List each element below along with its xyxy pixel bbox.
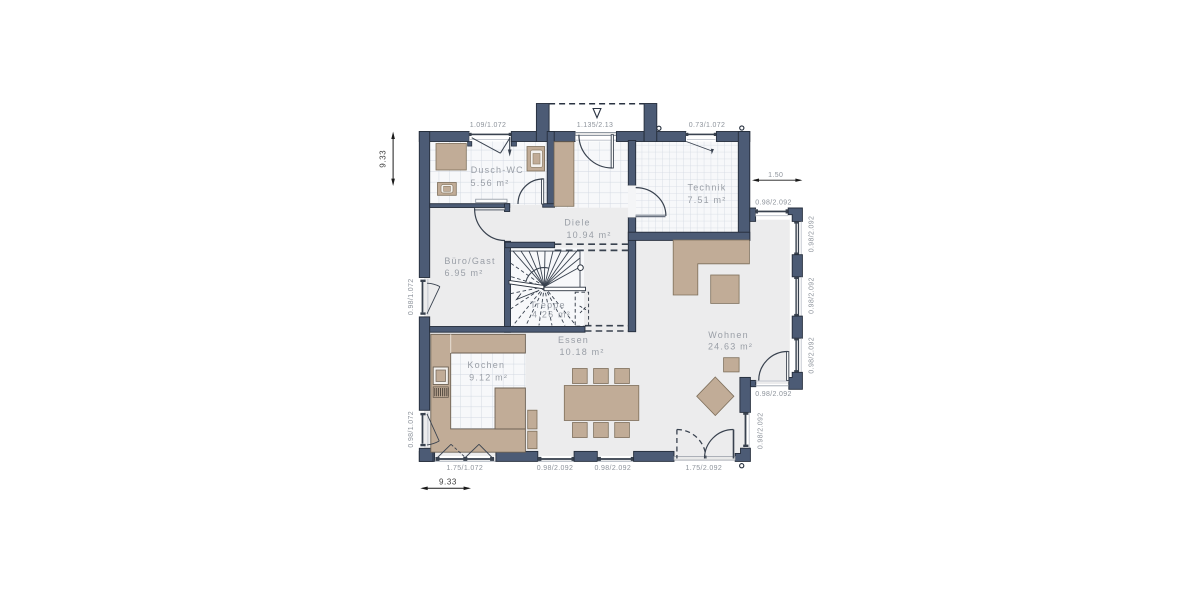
svg-text:Diele: Diele <box>564 218 591 228</box>
svg-text:0.98/1.072: 0.98/1.072 <box>408 279 415 316</box>
svg-text:Technik: Technik <box>688 183 727 193</box>
svg-text:Büro/Gast: Büro/Gast <box>444 256 495 266</box>
svg-text:0.98/2.092: 0.98/2.092 <box>809 337 816 374</box>
svg-text:10.18 m²: 10.18 m² <box>559 347 604 357</box>
svg-text:1.75/2.092: 1.75/2.092 <box>686 465 723 472</box>
svg-text:1.75/1.072: 1.75/1.072 <box>447 465 484 472</box>
svg-text:1.135/2.13: 1.135/2.13 <box>577 122 614 129</box>
svg-text:10.94 m²: 10.94 m² <box>566 230 611 240</box>
svg-text:6.95 m²: 6.95 m² <box>445 268 484 278</box>
svg-text:9.33: 9.33 <box>379 150 388 168</box>
svg-text:7.51 m²: 7.51 m² <box>688 195 727 205</box>
svg-text:Essen: Essen <box>558 335 589 345</box>
svg-text:Dusch-WC: Dusch-WC <box>471 165 524 175</box>
svg-text:1.09/1.072: 1.09/1.072 <box>470 122 507 129</box>
svg-text:1.50: 1.50 <box>768 172 783 179</box>
svg-text:0.98/2.092: 0.98/2.092 <box>809 216 816 253</box>
svg-text:0.98/2.092: 0.98/2.092 <box>809 277 816 314</box>
svg-text:0.98/2.092: 0.98/2.092 <box>758 413 765 450</box>
svg-text:9.12 m²: 9.12 m² <box>469 373 508 383</box>
svg-text:5.56 m²: 5.56 m² <box>471 178 510 188</box>
svg-text:24.63 m²: 24.63 m² <box>708 342 753 352</box>
svg-text:Kochen: Kochen <box>467 360 505 370</box>
svg-text:Wohnen: Wohnen <box>708 330 749 340</box>
svg-text:0.98/2.092: 0.98/2.092 <box>755 391 792 398</box>
svg-text:4.26 m²: 4.26 m² <box>532 309 571 319</box>
svg-text:0.73/1.072: 0.73/1.072 <box>689 122 726 129</box>
svg-text:0.98/2.092: 0.98/2.092 <box>595 465 632 472</box>
svg-text:0.98/2.092: 0.98/2.092 <box>537 465 574 472</box>
svg-text:9.33: 9.33 <box>439 477 457 486</box>
svg-text:0.98/1.072: 0.98/1.072 <box>408 411 415 448</box>
svg-text:0.98/2.092: 0.98/2.092 <box>755 200 792 207</box>
